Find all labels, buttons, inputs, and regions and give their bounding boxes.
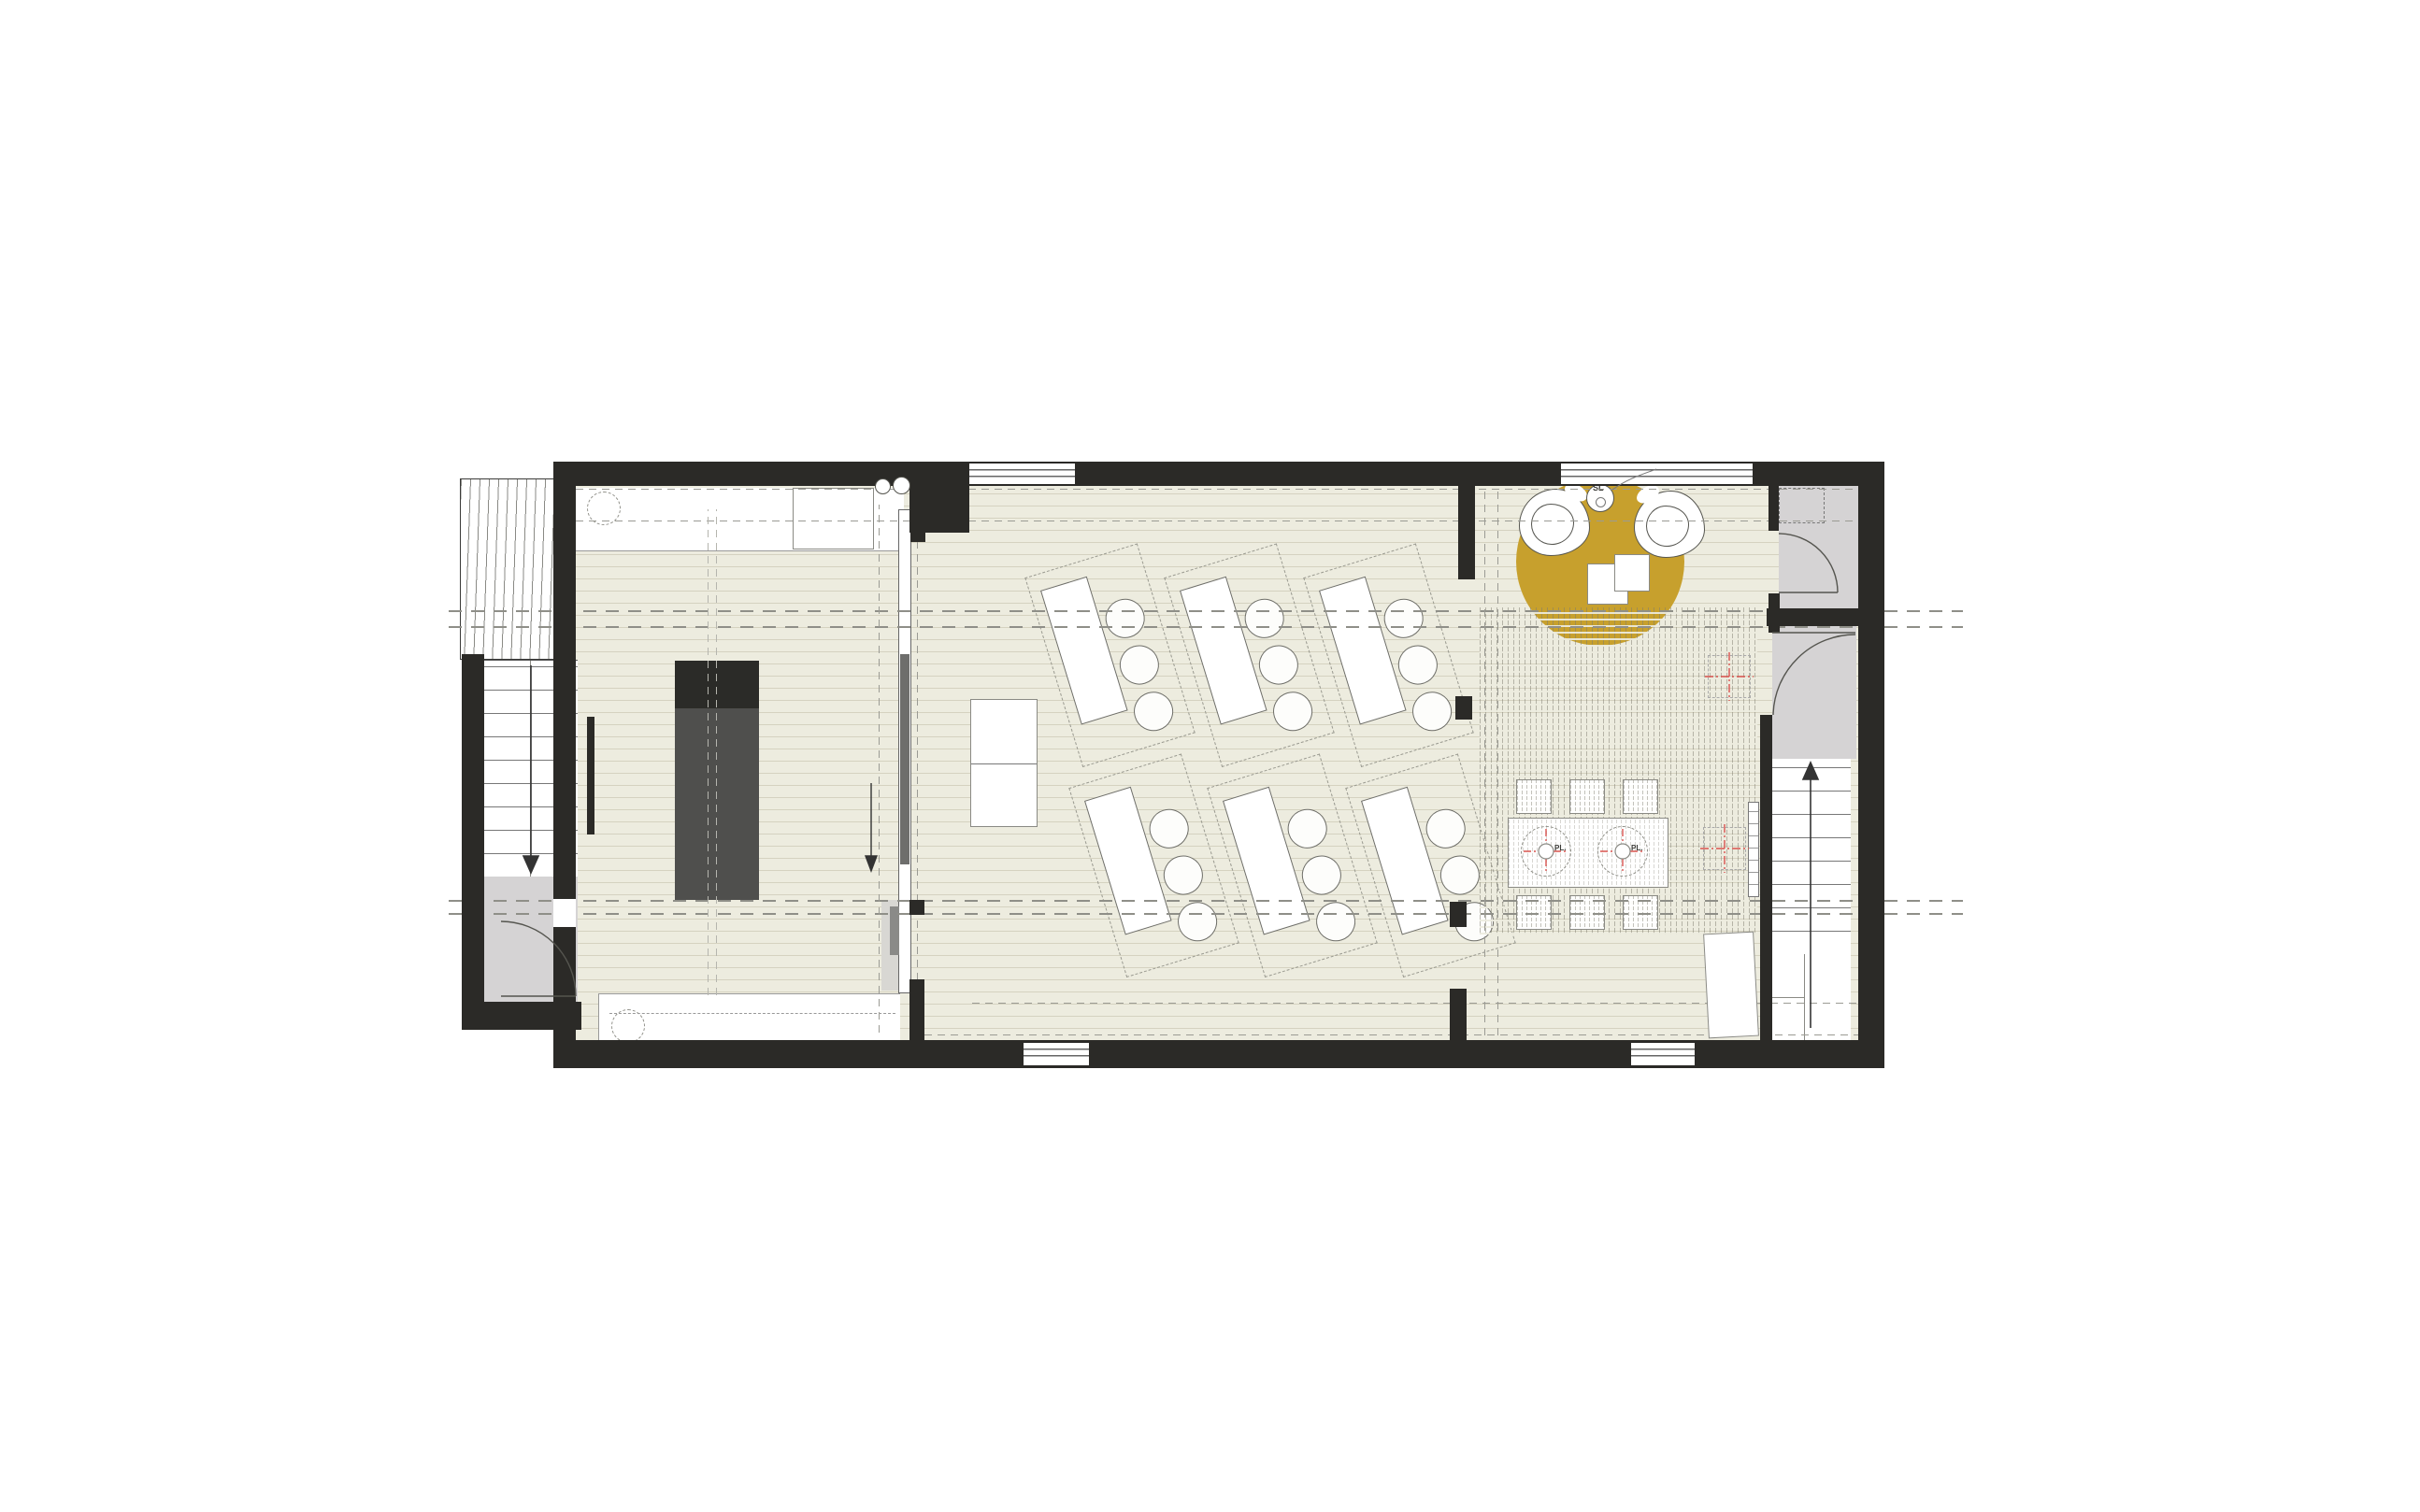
sink-circle-2 (893, 477, 910, 494)
floor-plan-canvas: SL PL. PL. (0, 0, 2420, 1512)
reference-line-pair1-b (449, 626, 1963, 628)
marker-dashed-square-1 (1708, 655, 1751, 698)
partition2-post2 (1450, 902, 1467, 927)
inner-wall-strip (587, 717, 594, 834)
vertical-dashed-2 (917, 505, 918, 1033)
west-ramp-hatch (460, 478, 565, 660)
reference-line-pair2-b (449, 913, 1963, 915)
square-table-2 (1614, 554, 1650, 592)
partition2-post1 (1455, 696, 1472, 720)
partition1-stub-bottom1 (909, 900, 924, 915)
vertical-dashed-4 (1497, 491, 1498, 1035)
stool (1516, 779, 1552, 814)
wall-east (1858, 462, 1884, 1068)
partition1-stub-bottom2 (909, 979, 924, 1040)
east-stair-treads (1772, 759, 1851, 954)
reference-line-pair1-a (449, 610, 1963, 612)
wc-divider-wall (1767, 608, 1862, 626)
partition2-top (1458, 486, 1475, 579)
interior-dashed-top-a (576, 489, 1858, 490)
vertical-dashed-5 (708, 509, 709, 995)
wc-wall-3 (1760, 715, 1772, 1040)
partition1-stub-top (910, 486, 925, 542)
lounge-chair-left (1519, 489, 1590, 556)
window-north-2 (1561, 464, 1753, 484)
stair-return-line (1772, 997, 1804, 998)
window-south-2 (1631, 1043, 1695, 1065)
window-north-1 (969, 464, 1075, 484)
storage-cabinet (970, 699, 1038, 827)
lounge-chair-right (1634, 491, 1705, 558)
vertical-dashed-6 (716, 509, 717, 995)
counter-dash-inner-1 (609, 1013, 895, 1014)
counter-dashed-circle-bottom (611, 1009, 645, 1043)
vertical-dashed-1 (879, 505, 880, 1033)
wc1-skylight-dashed-square (1779, 488, 1825, 523)
wc-wall-1 (1768, 475, 1779, 531)
annex-wall-west (462, 654, 484, 1030)
landing-door-opening (553, 899, 576, 927)
pendant-light-label-2: PL. (1631, 844, 1642, 852)
window-south-1 (1024, 1043, 1089, 1065)
vertical-dashed-3 (1484, 491, 1485, 1035)
marker-dashed-square-2 (1703, 827, 1746, 870)
west-stair-centerline (530, 661, 531, 877)
interior-dashed-top-b (576, 521, 1858, 521)
wall-west (553, 462, 576, 1068)
wc2-floor (1772, 626, 1856, 759)
east-stair-landing (1772, 954, 1851, 1040)
radiator (1748, 802, 1759, 897)
sink-circle-1 (875, 478, 891, 494)
side-table-lamp (1596, 497, 1606, 507)
pendant-light-label-1: PL. (1554, 844, 1566, 852)
sliding-door-leaf (900, 654, 909, 864)
stair-return-divider (1804, 954, 1805, 1040)
stool (1569, 779, 1605, 814)
cabinet-divider (971, 763, 1037, 764)
appliance-block (793, 488, 874, 549)
annex-wall-south (462, 1002, 581, 1030)
open-door-leaf (1703, 932, 1759, 1039)
reference-line-pair2-a (449, 900, 1963, 902)
stool (1623, 779, 1658, 814)
partition2-bottom (1450, 989, 1467, 1040)
